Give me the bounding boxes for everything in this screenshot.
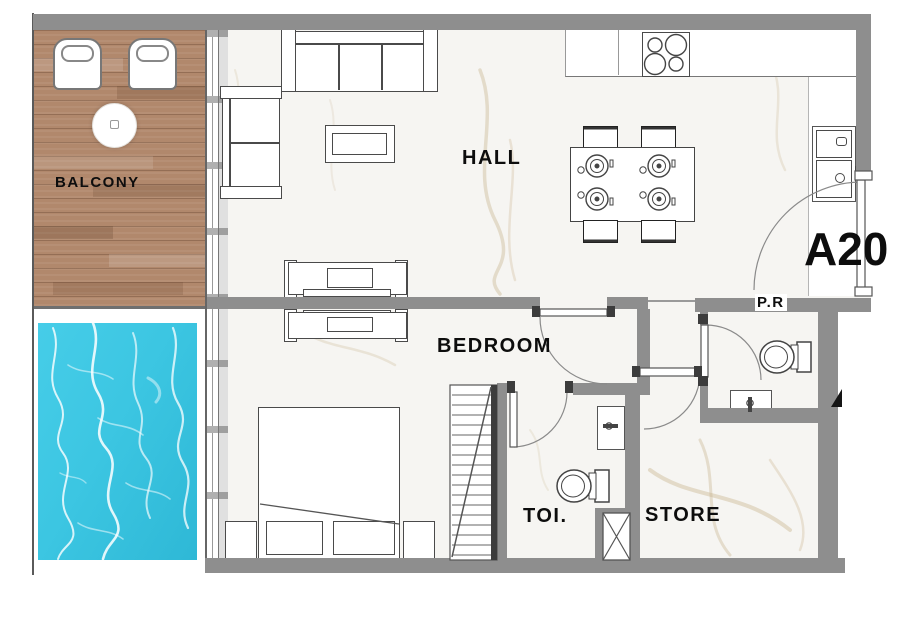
label-powder-room: P.R (755, 294, 787, 311)
service-shaft (603, 513, 630, 560)
store-door-leaf (640, 368, 700, 376)
label-bedroom: BEDROOM (437, 335, 552, 358)
door-leaves (510, 171, 872, 447)
section-marker (831, 389, 842, 407)
place-settings (578, 155, 675, 210)
stove-burners (645, 35, 687, 75)
faucet-glyphs (603, 397, 753, 429)
label-store: STORE (645, 504, 721, 527)
toilet-powder-room (760, 341, 811, 373)
toilet-toi-room (557, 470, 609, 502)
powder-room-door-leaf (701, 325, 708, 377)
label-hall: HALL (462, 147, 521, 170)
entrance-door-sill (855, 171, 872, 180)
floor-plan: BALCONY HALL BEDROOM TOI. STORE P.R A20 (0, 0, 919, 619)
entrance-door-sill (855, 287, 872, 296)
label-balcony: BALCONY (55, 174, 140, 191)
wardrobe-wedge (450, 385, 497, 560)
label-unit-number: A20 (804, 222, 888, 276)
bedroom-door-leaf (540, 309, 607, 316)
toilet-door-leaf (510, 392, 517, 447)
label-toilet: TOI. (523, 505, 568, 528)
bed-fold-line (260, 504, 399, 524)
